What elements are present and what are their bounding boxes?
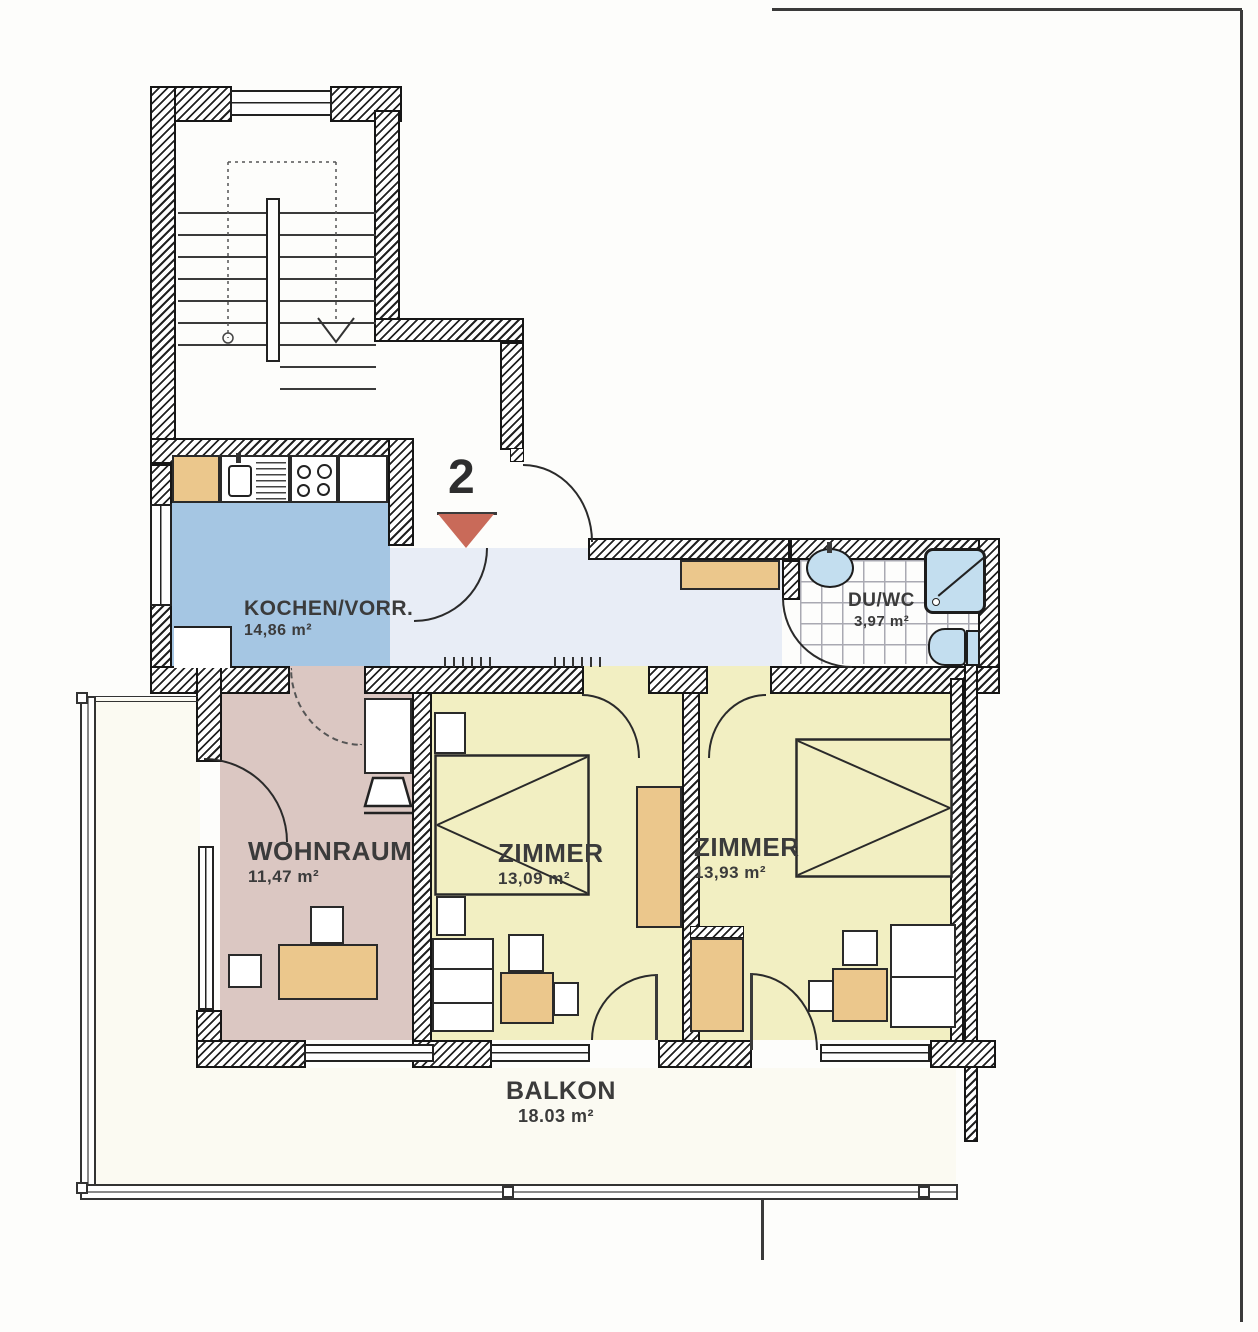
room-name: WOHNRAUM bbox=[248, 836, 412, 867]
chair-symbol bbox=[842, 930, 878, 966]
wall bbox=[782, 560, 800, 600]
vent-ticks bbox=[444, 657, 498, 667]
balcony-railing bbox=[80, 696, 96, 1192]
room-name: BALKON bbox=[506, 1076, 616, 1106]
wall bbox=[364, 666, 584, 694]
wall bbox=[500, 342, 524, 450]
nightstand-symbol bbox=[434, 712, 466, 754]
tap-symbol bbox=[827, 542, 832, 553]
scan-edge-right bbox=[1240, 10, 1243, 1322]
vent-ticks bbox=[554, 657, 608, 667]
window bbox=[230, 90, 332, 116]
chair-symbol bbox=[808, 980, 834, 1012]
room-label-bath: DU/WC 3,97 m² bbox=[848, 590, 915, 631]
toilet-symbol bbox=[928, 628, 966, 666]
tv-symbol bbox=[362, 776, 414, 818]
entrance-arrow-icon bbox=[438, 514, 494, 548]
chair-symbol bbox=[228, 954, 262, 988]
room-name: ZIMMER bbox=[694, 832, 800, 863]
room-area: 14,86 m² bbox=[244, 621, 413, 640]
chair-symbol bbox=[508, 934, 544, 972]
wall bbox=[150, 86, 176, 452]
wall bbox=[196, 1040, 306, 1068]
window bbox=[304, 1044, 434, 1062]
window bbox=[150, 504, 172, 606]
chair-symbol bbox=[310, 906, 344, 944]
door-jamb bbox=[510, 448, 524, 462]
wall bbox=[658, 1040, 752, 1068]
dresser-symbol bbox=[432, 938, 494, 1032]
door-leaf bbox=[655, 974, 658, 1040]
balcony-railing bbox=[80, 1184, 958, 1200]
washbasin-symbol bbox=[806, 548, 854, 588]
room-label-living: WOHNRAUM 11,47 m² bbox=[248, 836, 412, 888]
unit-number: 2 bbox=[448, 450, 475, 505]
railing-post bbox=[502, 1186, 514, 1198]
stove-symbol bbox=[290, 455, 338, 503]
wall bbox=[412, 692, 432, 1044]
desk-symbol bbox=[500, 972, 554, 1024]
wardrobe-symbol bbox=[690, 938, 744, 1032]
room-area: 13,93 m² bbox=[694, 863, 800, 883]
railing-post bbox=[918, 1186, 930, 1198]
shower-symbol bbox=[924, 548, 986, 614]
wall bbox=[196, 1010, 222, 1044]
desk-symbol bbox=[832, 968, 888, 1022]
room-label-bedroom2: ZIMMER 13,93 m² bbox=[694, 832, 800, 884]
window bbox=[490, 1044, 590, 1062]
room-label-balcony: BALKON 18.03 m² bbox=[506, 1076, 616, 1128]
wall bbox=[388, 438, 414, 546]
window bbox=[820, 1044, 930, 1062]
wall bbox=[196, 666, 222, 762]
wall bbox=[964, 664, 978, 1142]
entrance-door-arc bbox=[523, 464, 593, 542]
tv-stand-symbol bbox=[364, 698, 412, 774]
stairs-direction-arrow bbox=[176, 150, 386, 410]
room-area: 3,97 m² bbox=[848, 613, 915, 631]
toilet-tank-symbol bbox=[966, 630, 980, 666]
room-label-bedroom1: ZIMMER 13,09 m² bbox=[498, 838, 604, 890]
door-leaf bbox=[750, 973, 753, 1050]
wall bbox=[690, 926, 744, 938]
railing-post bbox=[76, 692, 88, 704]
room-area: 11,47 m² bbox=[248, 867, 412, 887]
window bbox=[198, 846, 214, 1010]
wall bbox=[588, 538, 790, 560]
chair-symbol bbox=[553, 982, 579, 1016]
table-symbol bbox=[278, 944, 378, 1000]
wall bbox=[648, 666, 708, 694]
wardrobe-symbol bbox=[636, 786, 682, 928]
kitchen-cabinet-symbol bbox=[172, 455, 220, 503]
room-label-kitchen: KOCHEN/VORR. 14,86 m² bbox=[244, 596, 413, 640]
nightstand-symbol bbox=[436, 896, 466, 936]
room-area: 13,09 m² bbox=[498, 869, 604, 889]
wall bbox=[374, 318, 524, 342]
bed-symbol bbox=[795, 738, 953, 878]
bathroom-door-arc bbox=[782, 598, 852, 668]
railing-post bbox=[76, 1182, 88, 1194]
balcony-edge bbox=[96, 696, 198, 702]
dresser-symbol bbox=[890, 924, 956, 1028]
room-name: KOCHEN/VORR. bbox=[244, 596, 413, 621]
scan-edge-top bbox=[772, 8, 1242, 11]
room-name: DU/WC bbox=[848, 590, 915, 613]
room-name: ZIMMER bbox=[498, 838, 604, 869]
wardrobe-symbol bbox=[680, 560, 780, 590]
room-area: 18.03 m² bbox=[506, 1106, 616, 1128]
kitchen-niche bbox=[174, 626, 232, 668]
scan-mark bbox=[761, 1198, 764, 1260]
wall bbox=[930, 1040, 996, 1068]
floor-plan-scan: 2 bbox=[0, 0, 1258, 1332]
kitchen-sink-symbol bbox=[220, 455, 290, 503]
kitchen-counter-symbol bbox=[338, 455, 388, 503]
